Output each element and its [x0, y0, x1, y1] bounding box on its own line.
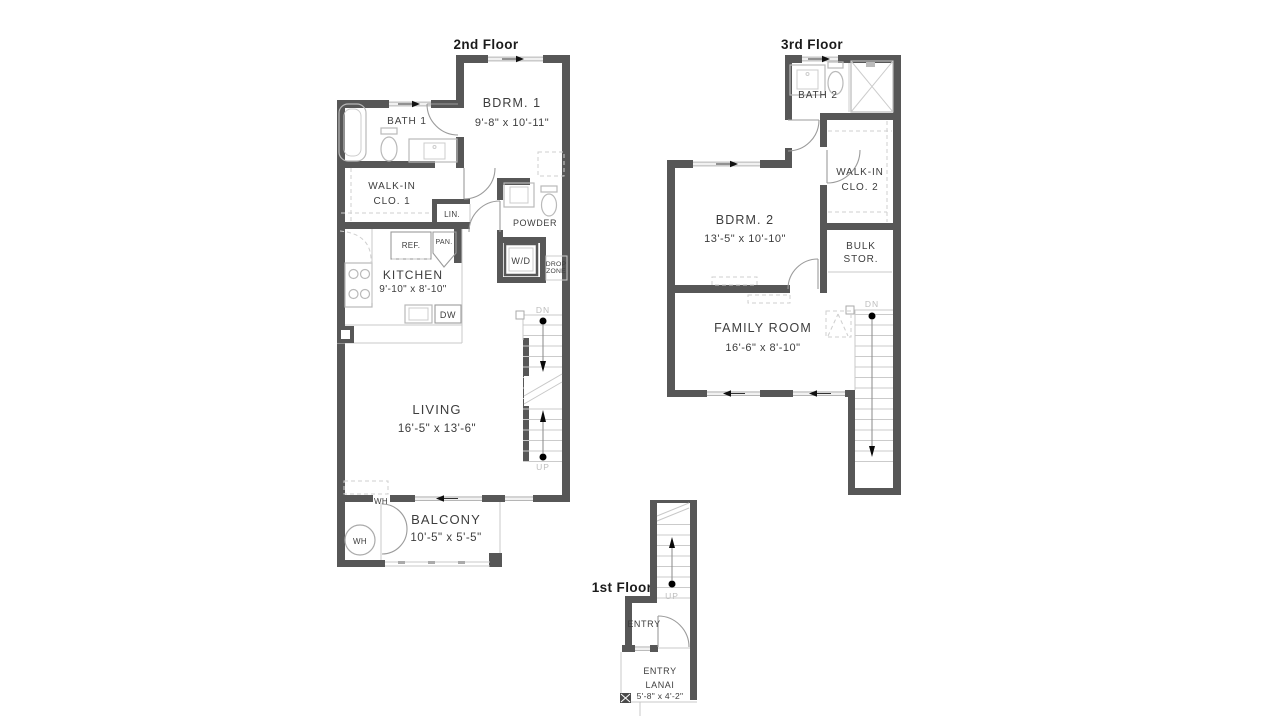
label-bath2: BATH 2: [798, 90, 838, 101]
toilet-fixture: [381, 128, 397, 161]
floor-plan-svg: 2nd Floor: [0, 0, 1280, 725]
dim-kitchen: 9'-10" x 8'-10": [379, 284, 447, 295]
dim-bdrm2: 13'-5" x 10'-10": [704, 233, 786, 245]
label-bulk-line2: STOR.: [844, 254, 879, 265]
label-walkin1-line2: CLO. 1: [373, 196, 410, 207]
stairs-3rd-floor: DN: [826, 299, 893, 462]
label-dropzone-line2: ZONE: [546, 268, 566, 275]
label-powder: POWDER: [513, 218, 557, 228]
label-pan: PAN.: [435, 239, 452, 246]
label-bdrm2: BDRM. 2: [716, 213, 774, 227]
lanai-post-marker: [620, 693, 631, 703]
stair-dn-label-3f: DN: [865, 299, 879, 309]
bath1-fixtures: [339, 104, 457, 162]
first-floor: 1st Floor UP: [592, 500, 697, 716]
label-wd: W/D: [511, 256, 530, 266]
stairs-1st-floor: UP: [657, 503, 690, 601]
label-lanai-line2: LANAI: [645, 680, 674, 690]
label-linen: LIN.: [444, 210, 460, 219]
label-walkin1-line1: WALK-IN: [368, 181, 416, 192]
label-dw: DW: [440, 310, 456, 320]
label-walkin2-line2: CLO. 2: [841, 182, 878, 193]
second-floor: 2nd Floor: [337, 37, 570, 567]
stairs-2nd-floor: DN UP: [516, 305, 562, 472]
water-heater-circle: WH: [345, 525, 375, 555]
label-wh-wall: WH: [374, 497, 388, 506]
label-kitchen: KITCHEN: [383, 268, 443, 282]
chase-dashed-box: [826, 311, 851, 337]
walkin1-dashes: [341, 168, 431, 221]
dim-balcony: 10'-5" x 5'-5": [410, 532, 481, 544]
third-floor: 3rd Floor: [667, 37, 901, 495]
label-living: LIVING: [412, 402, 461, 417]
kitchen-sink-fixture: [405, 305, 432, 323]
dim-bdrm1: 9'-8" x 10'-11": [475, 117, 549, 129]
label-lanai-line1: ENTRY: [643, 666, 676, 676]
floor-title-3rd: 3rd Floor: [781, 37, 843, 52]
label-bdrm1: BDRM. 1: [483, 96, 541, 110]
labels-1st-floor: ENTRY ENTRY LANAI 5'-8" x 4'-2": [627, 619, 683, 701]
floor-plan-page: 2nd Floor: [0, 0, 1280, 725]
stair-up-label-1f: UP: [665, 591, 679, 601]
dim-lanai: 5'-8" x 4'-2": [637, 691, 684, 701]
label-balcony: BALCONY: [411, 512, 481, 527]
doors-1st-floor: [658, 616, 689, 647]
stair-treads: [855, 310, 893, 462]
doors-2nd-floor: [382, 104, 500, 554]
stove-fixture: [345, 263, 372, 307]
stair-dn-label-2f: DN: [536, 305, 550, 315]
powder-sink-fixture: [504, 183, 534, 207]
label-ref: REF.: [402, 241, 421, 250]
shower-fixture: [851, 61, 893, 112]
dim-living: 16'-5" x 13'-6": [398, 423, 476, 435]
pantry-box: [433, 232, 456, 267]
water-heater-label: WH: [353, 537, 367, 546]
label-walkin2-line1: WALK-IN: [836, 167, 884, 178]
label-dropzone-line1: DROP: [546, 261, 567, 268]
powder-toilet-fixture: [541, 186, 557, 216]
sink-vanity-fixture: [409, 139, 457, 162]
label-bulk-line1: BULK: [846, 241, 876, 252]
powder-fixtures: [504, 183, 557, 216]
label-bath1: BATH 1: [387, 116, 427, 127]
stair-up-label-2f: UP: [536, 462, 550, 472]
label-entry: ENTRY: [627, 619, 660, 629]
kitchen-corner-post: [339, 328, 352, 341]
bath2-fixtures: [790, 61, 893, 112]
label-family-room: FAMILY ROOM: [714, 321, 812, 335]
dim-family-room: 16'-6" x 8'-10": [725, 342, 800, 354]
floor-title-2nd: 2nd Floor: [453, 37, 518, 52]
floor-title-1st: 1st Floor: [592, 580, 653, 595]
